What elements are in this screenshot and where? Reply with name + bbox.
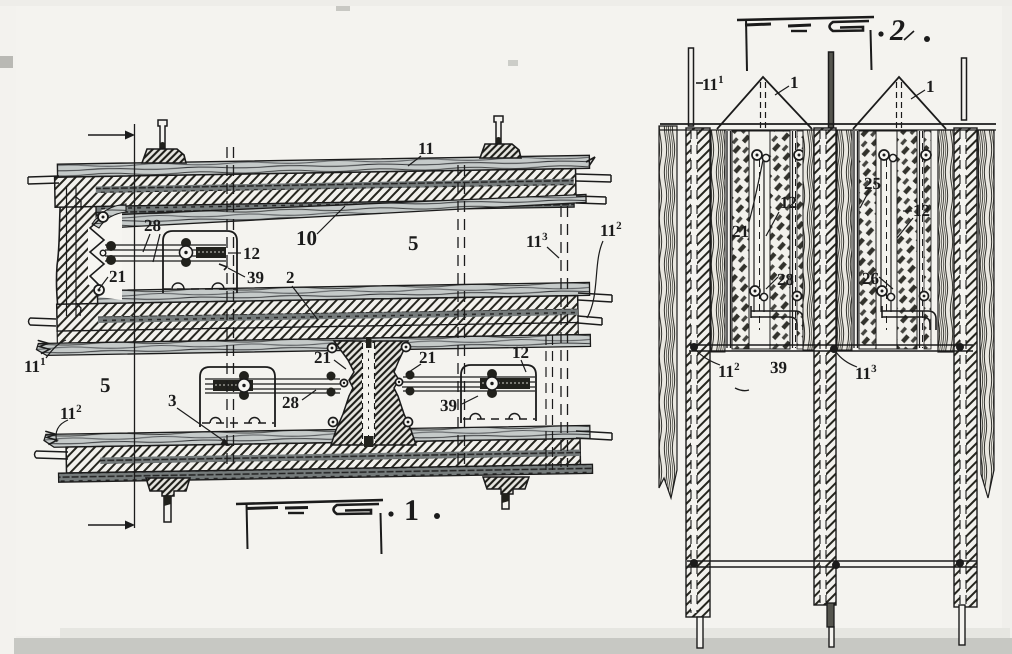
svg-text:25: 25 <box>864 174 881 193</box>
svg-text:12: 12 <box>780 193 797 212</box>
svg-text:12: 12 <box>243 244 260 263</box>
svg-text:1: 1 <box>926 77 935 96</box>
svg-text:10: 10 <box>296 226 317 250</box>
svg-text:21: 21 <box>419 348 436 367</box>
svg-text:2: 2 <box>286 268 295 287</box>
svg-text:5: 5 <box>100 373 111 397</box>
svg-text:12: 12 <box>913 201 930 220</box>
svg-text:2: 2 <box>889 14 905 47</box>
svg-text:28: 28 <box>144 216 161 235</box>
svg-text:28: 28 <box>777 270 794 289</box>
svg-text:1: 1 <box>404 494 419 527</box>
svg-text:12: 12 <box>512 343 529 362</box>
svg-text:21: 21 <box>732 222 749 241</box>
svg-text:1: 1 <box>790 73 799 92</box>
svg-text:21: 21 <box>109 267 126 286</box>
svg-text:3: 3 <box>168 391 177 410</box>
svg-text:11: 11 <box>418 139 434 158</box>
svg-text:26: 26 <box>862 269 879 288</box>
svg-text:5: 5 <box>408 231 419 255</box>
svg-text:21: 21 <box>314 348 331 367</box>
svg-text:39: 39 <box>770 358 787 377</box>
svg-text:39: 39 <box>247 268 264 287</box>
svg-text:39: 39 <box>440 396 457 415</box>
svg-text:28: 28 <box>282 393 299 412</box>
